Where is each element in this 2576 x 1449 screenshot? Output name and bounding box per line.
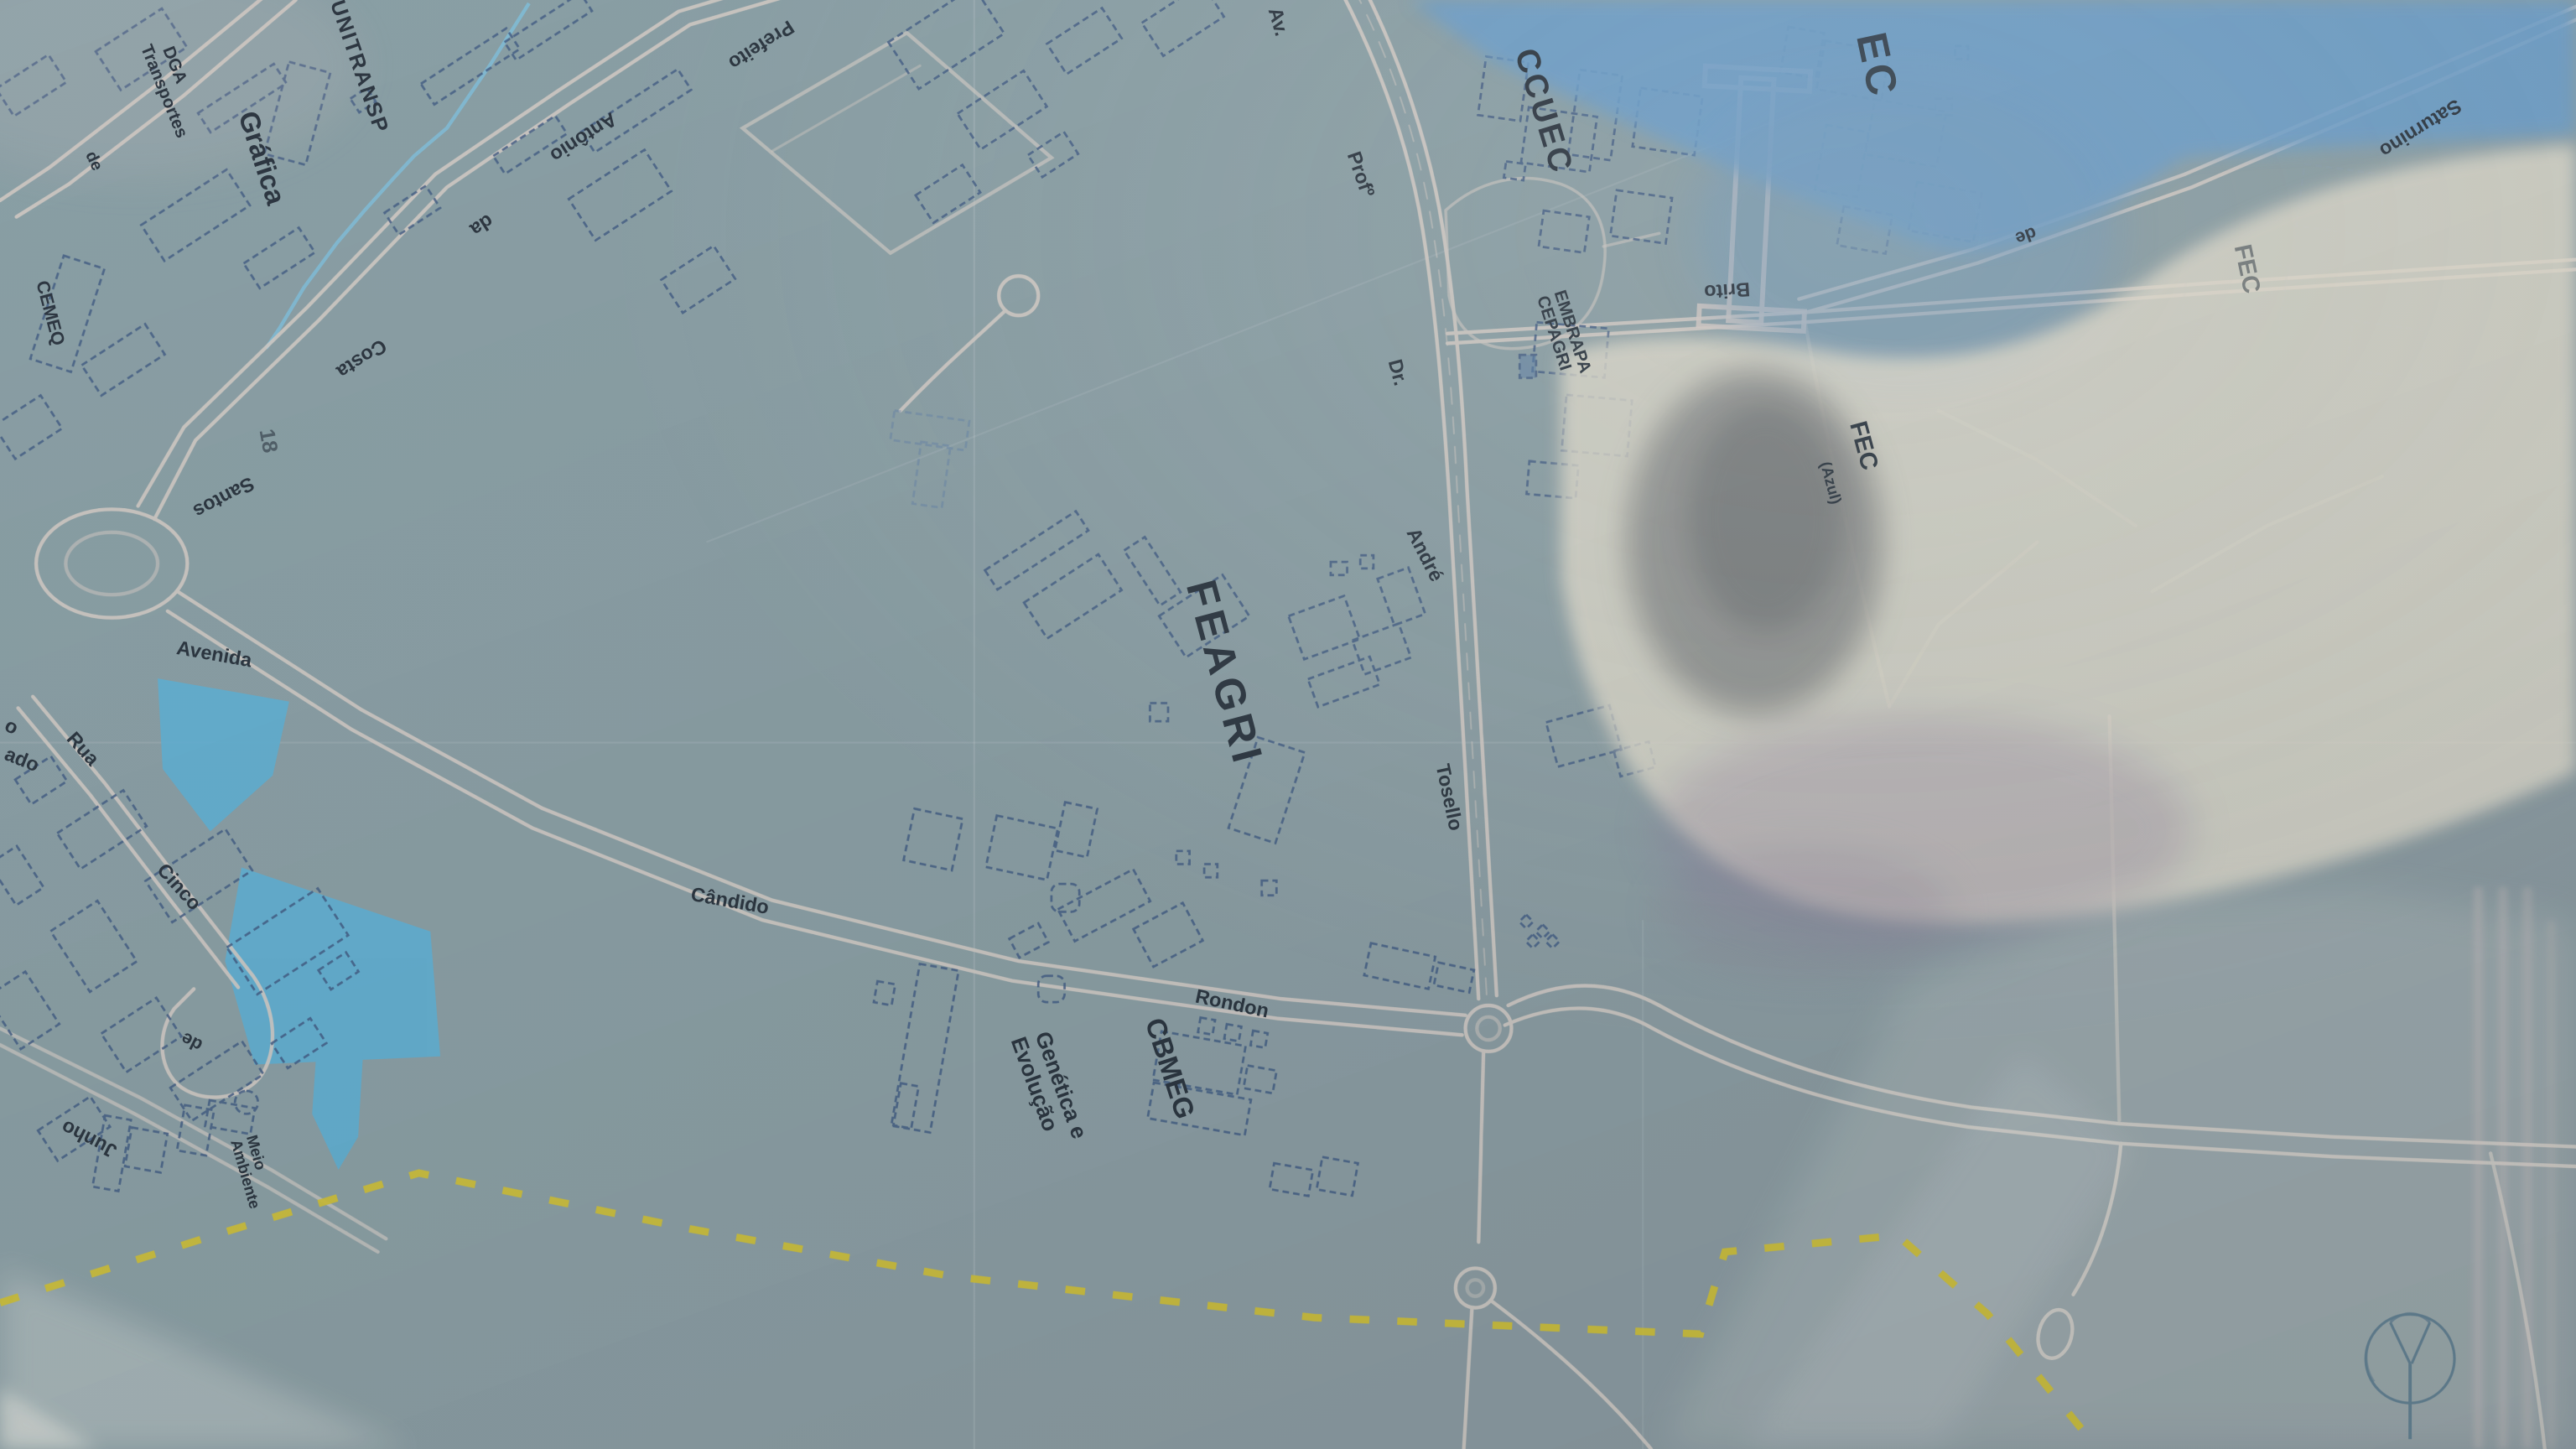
map-canvas: UNITRANSP DGATransportes de Gráfica CEME… xyxy=(0,0,2576,1449)
purple-shadow-2 xyxy=(1659,846,1955,978)
label-building-18: 18 xyxy=(255,427,282,454)
campus-map-photo: UNITRANSP DGATransportes de Gráfica CEME… xyxy=(0,0,2576,1449)
building-outline xyxy=(2475,887,2483,1449)
building-outline xyxy=(1519,355,1536,377)
photographer-shadow-core xyxy=(1687,402,1845,632)
label-brito: Brito xyxy=(1703,278,1751,304)
building-outline xyxy=(2499,887,2507,1449)
building-outline xyxy=(2548,920,2555,1449)
building-outline xyxy=(2523,887,2532,1449)
